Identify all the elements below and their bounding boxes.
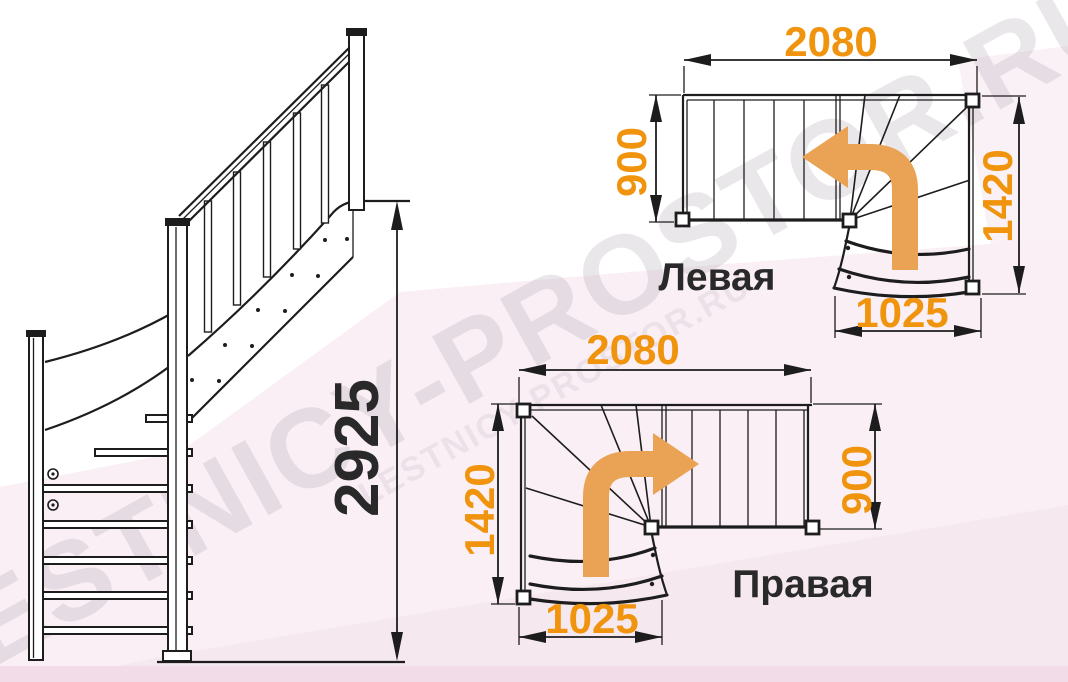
- right-winder-width-label: 1025: [545, 595, 638, 642]
- left-newel-post: [26, 330, 46, 660]
- staircase-diagram: LESTNICY-PROSTOR.RU LESTNICY-PROSTOR.RU: [0, 0, 1068, 682]
- left-flight-width-label: 900: [608, 127, 655, 197]
- balusters: [205, 85, 329, 332]
- right-plan-title: Правая: [732, 563, 873, 606]
- right-total-length-label: 1420: [456, 463, 503, 556]
- height-dimension-label: 2925: [323, 379, 392, 517]
- right-flight-width-label: 900: [833, 445, 880, 515]
- central-newel-post: [163, 218, 191, 661]
- left-total-length-label: 1420: [974, 149, 1021, 242]
- left-plan-title: Левая: [659, 256, 776, 299]
- staircase-drawing-canvas: LESTNICY-PROSTOR.RU LESTNICY-PROSTOR.RU: [0, 0, 1068, 682]
- winder-stringer-curve: [45, 312, 178, 430]
- right-width-label: 2080: [586, 326, 679, 373]
- left-winder-width-label: 1025: [855, 289, 948, 336]
- left-width-label: 2080: [784, 18, 877, 65]
- top-newel-post: [346, 28, 367, 210]
